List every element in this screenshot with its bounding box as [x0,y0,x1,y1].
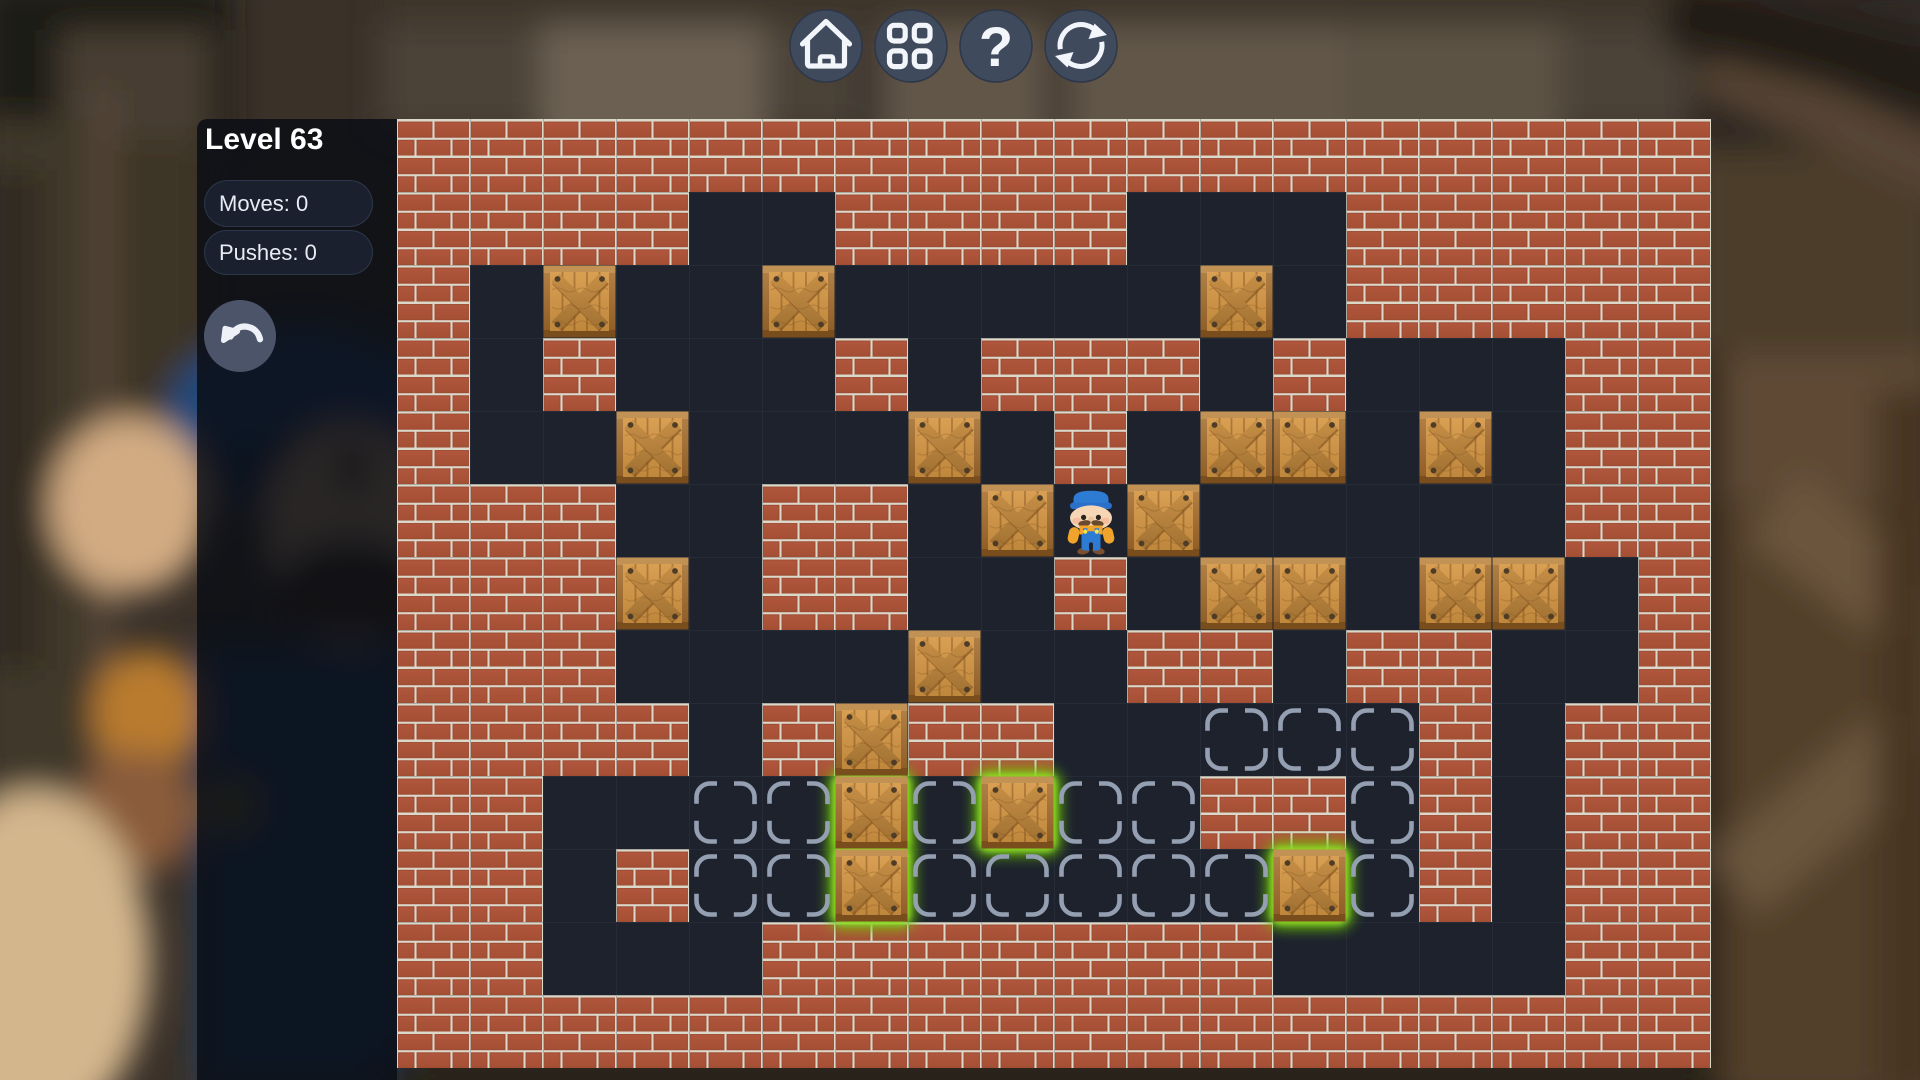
svg-text:?: ? [979,15,1013,78]
